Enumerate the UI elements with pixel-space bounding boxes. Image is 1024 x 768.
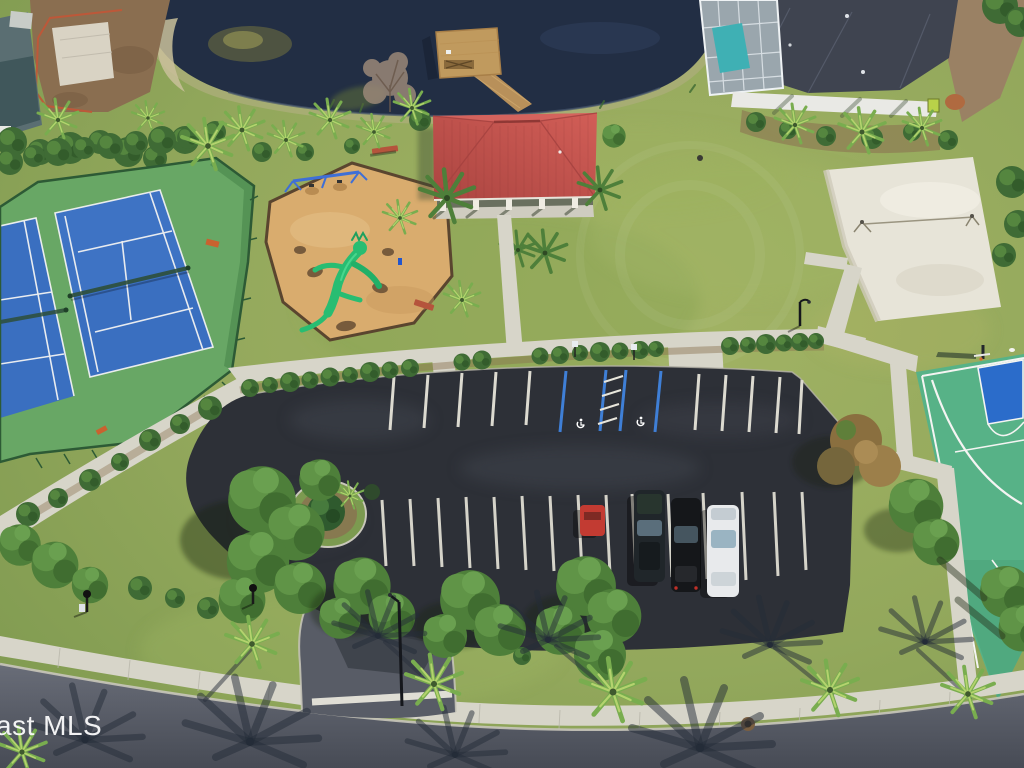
- grill: [697, 155, 703, 161]
- pool-enclosure: [700, 0, 783, 95]
- mls-watermark: ast MLS: [0, 710, 102, 742]
- dark-suv: [634, 490, 665, 582]
- black-car: [671, 498, 701, 592]
- white-car: [700, 505, 739, 598]
- red-car: [580, 505, 605, 536]
- aerial-scene: [0, 0, 1024, 768]
- person: [398, 258, 402, 265]
- aerial-photo: ast MLS: [0, 0, 1024, 768]
- foundation-slab: [52, 22, 114, 86]
- white-bird: [1009, 348, 1015, 352]
